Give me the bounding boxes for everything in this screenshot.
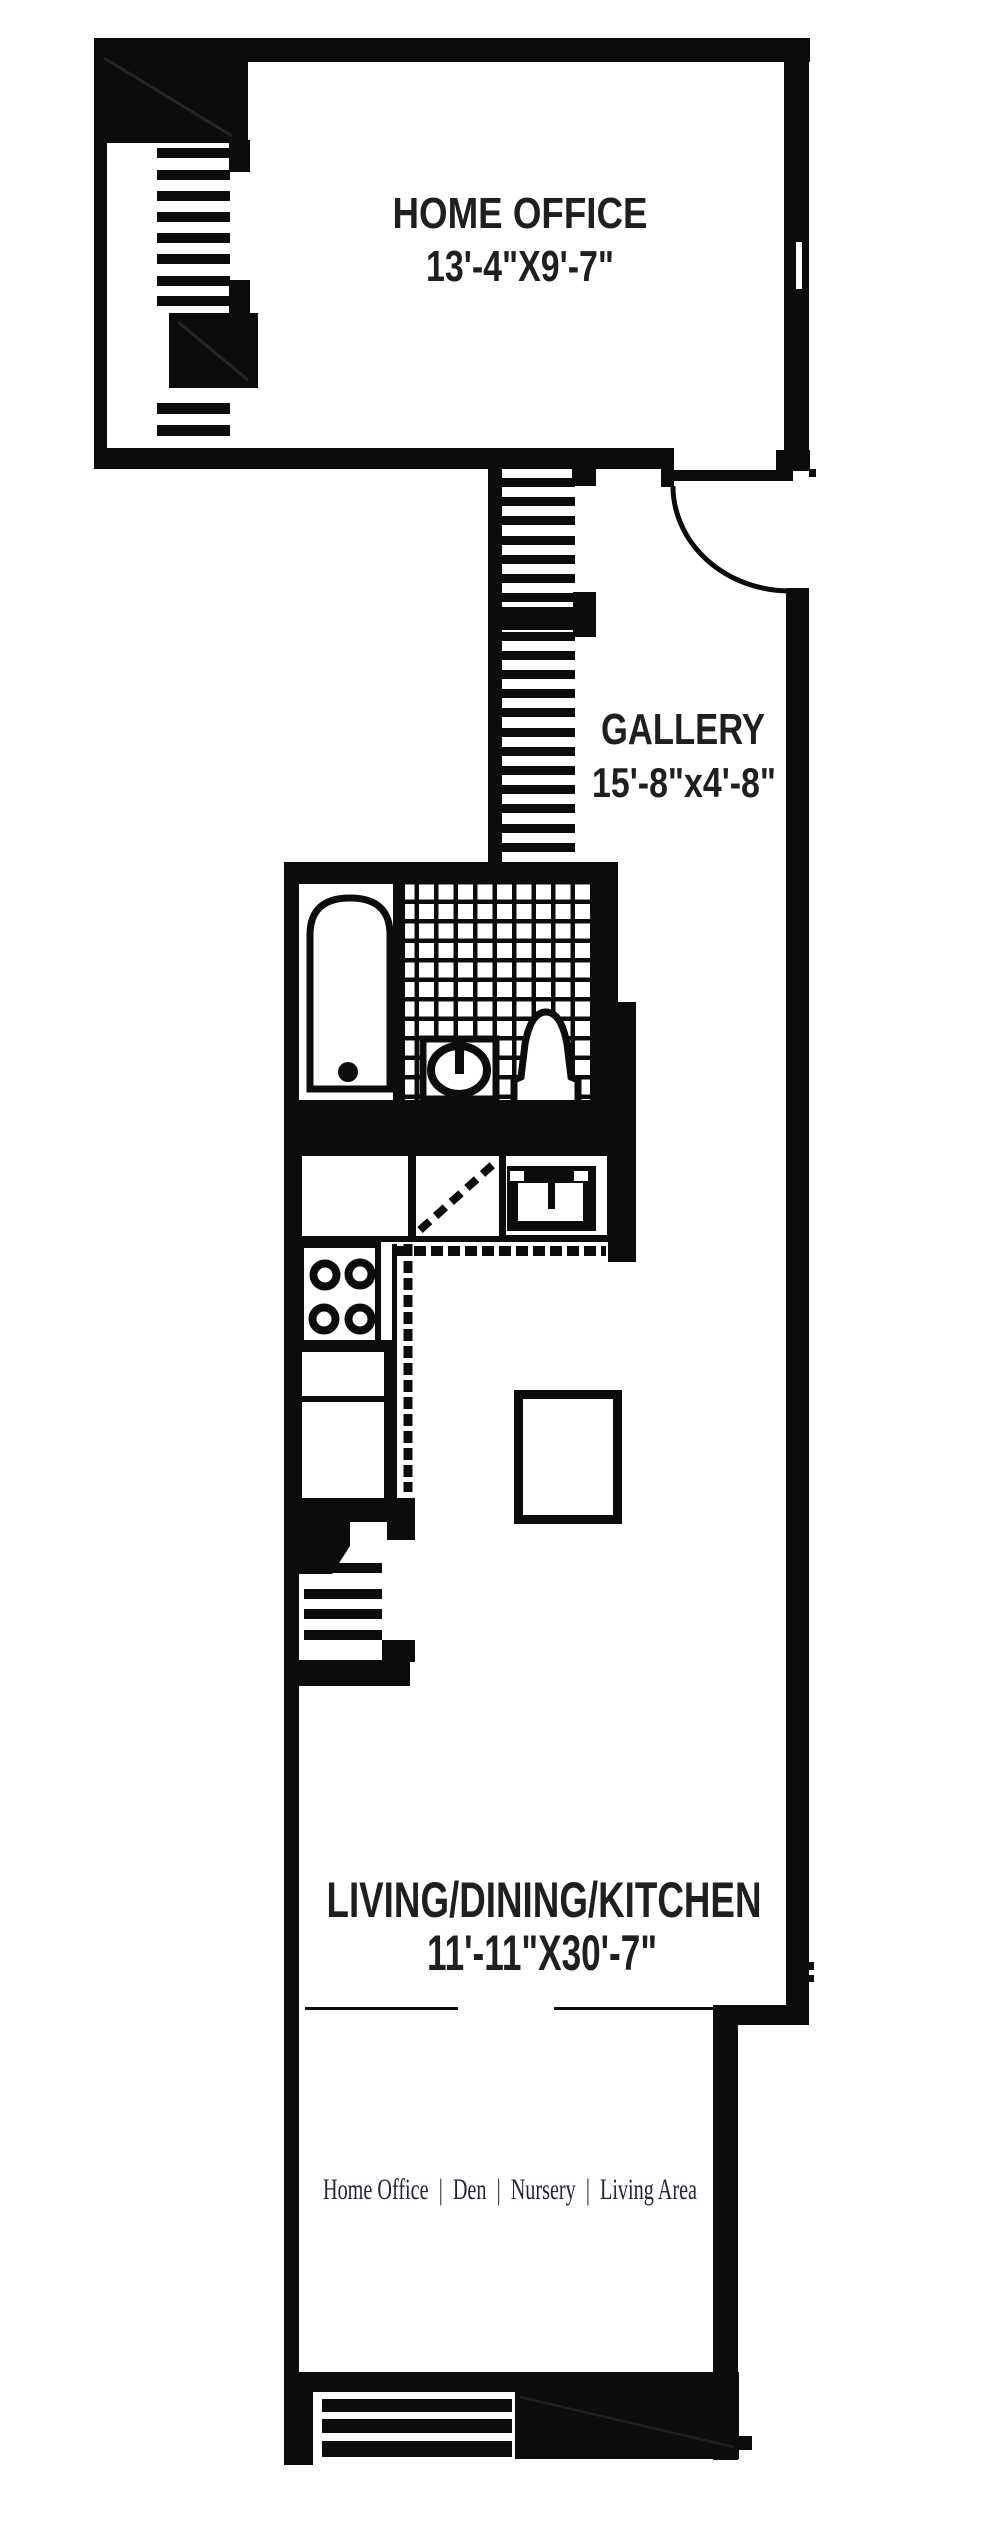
svg-text:HOME OFFICE: HOME OFFICE <box>393 189 648 238</box>
svg-text:Home Office | Den | Nurser: Home Office | Den | Nursery | Living Are… <box>323 2173 697 2206</box>
svg-text:13'-4"X9'-7": 13'-4"X9'-7" <box>426 242 614 291</box>
svg-text:15'-8"x4'-8": 15'-8"x4'-8" <box>592 759 776 806</box>
svg-text:11'-11"X30'-7": 11'-11"X30'-7" <box>427 1925 657 1981</box>
svg-text:GALLERY: GALLERY <box>601 705 765 754</box>
svg-text:LIVING/DINING/KITCHEN: LIVING/DINING/KITCHEN <box>327 1872 762 1928</box>
